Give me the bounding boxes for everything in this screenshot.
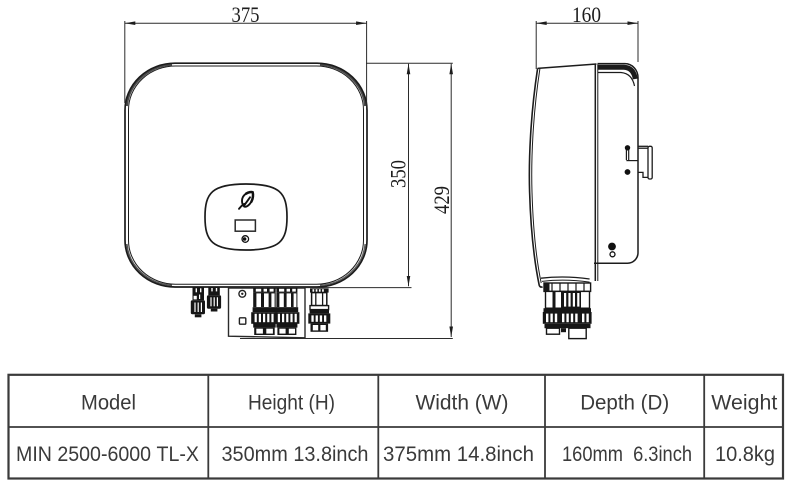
svg-text:Depth (D): Depth (D): [580, 392, 669, 415]
svg-text:375mm 14.8inch: 375mm 14.8inch: [383, 443, 534, 466]
svg-text:160: 160: [572, 2, 601, 27]
svg-text:Model: Model: [81, 392, 136, 415]
svg-text:429: 429: [429, 186, 454, 214]
svg-text:350: 350: [386, 160, 411, 188]
svg-text:160mm 6.3inch: 160mm 6.3inch: [562, 443, 692, 466]
svg-text:MIN 2500-6000 TL-X: MIN 2500-6000 TL-X: [16, 443, 199, 466]
svg-text:Width (W): Width (W): [416, 392, 509, 415]
svg-text:10.8kg: 10.8kg: [715, 443, 775, 466]
svg-text:375: 375: [232, 2, 260, 27]
svg-text:350mm 13.8inch: 350mm 13.8inch: [222, 443, 369, 466]
svg-text:Weight: Weight: [711, 392, 777, 415]
svg-text:Height (H): Height (H): [248, 392, 335, 415]
